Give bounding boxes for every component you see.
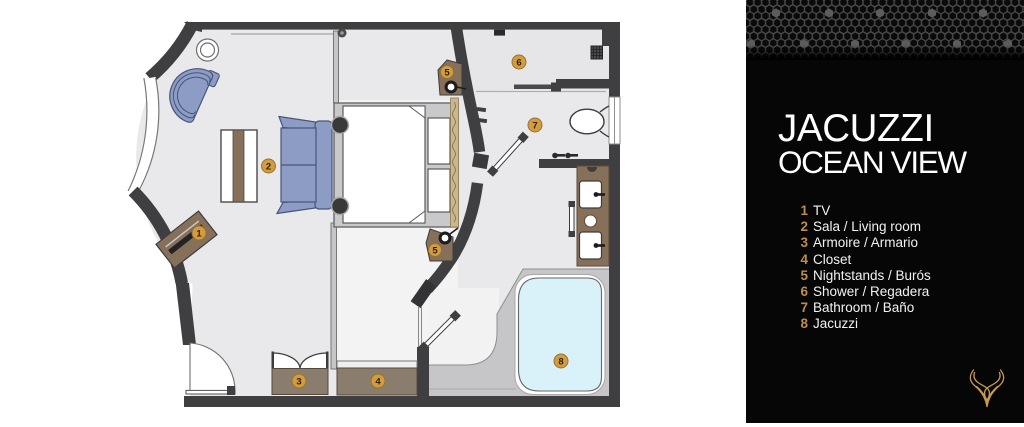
svg-text:5: 5 xyxy=(432,245,438,256)
svg-text:7: 7 xyxy=(532,120,537,131)
svg-text:4: 4 xyxy=(375,376,381,387)
svg-text:5: 5 xyxy=(444,67,450,78)
svg-text:1: 1 xyxy=(196,228,202,239)
svg-text:3: 3 xyxy=(296,376,301,387)
svg-text:6: 6 xyxy=(516,57,521,68)
svg-text:2: 2 xyxy=(266,161,271,172)
svg-text:8: 8 xyxy=(558,356,563,367)
